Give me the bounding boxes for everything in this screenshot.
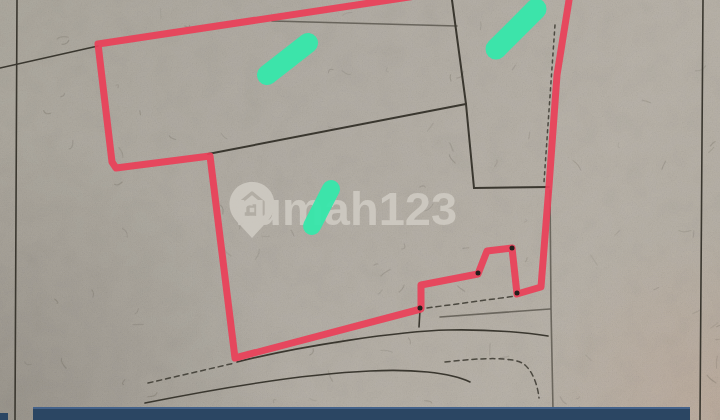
green-highlight-marker-1 (267, 43, 308, 75)
green-highlight-marker-2 (496, 9, 536, 49)
plot-highlight-layer (0, 0, 720, 420)
green-highlight-marker-3 (312, 189, 331, 226)
navy-banner (33, 407, 690, 420)
navy-banner-notch (0, 413, 8, 420)
site-plan-image: rumah123 (0, 0, 720, 420)
